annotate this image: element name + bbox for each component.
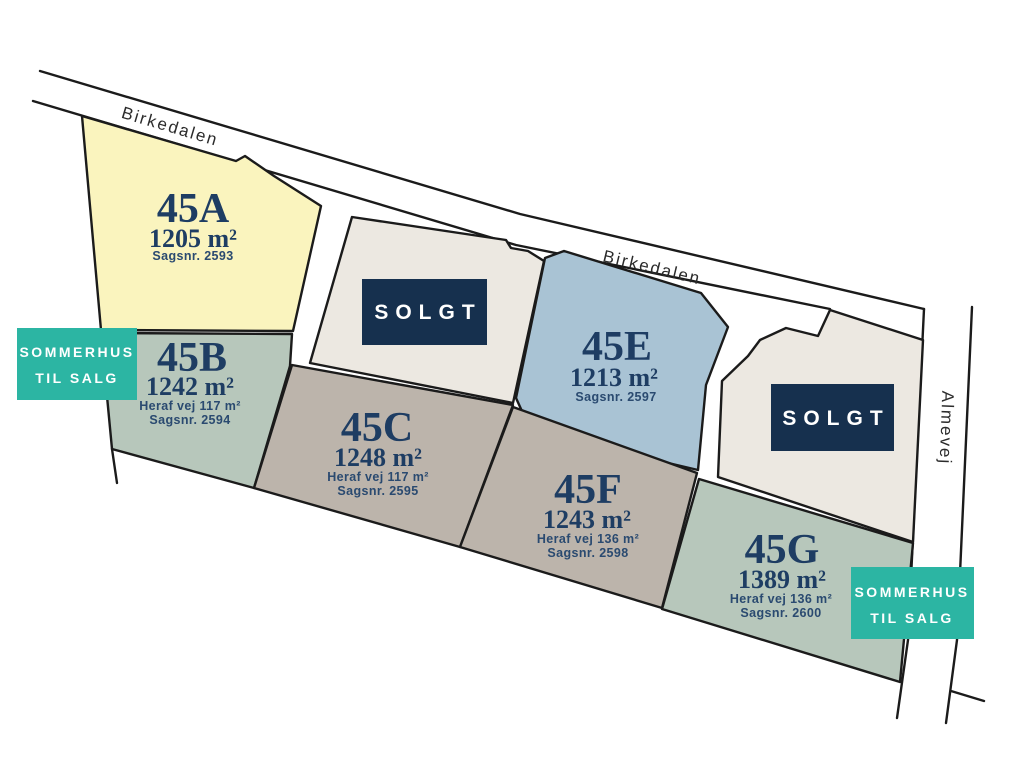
plot-45B-boundary-stub: [112, 449, 117, 483]
for-sale-badge-right[interactable]: SOMMERHUS TIL SALG: [851, 567, 974, 639]
for-sale-badge-left[interactable]: SOMMERHUS TIL SALG: [17, 328, 137, 400]
plot-45C-road-share: Heraf vej 117 m²: [327, 470, 429, 484]
plot-45F-road-share: Heraf vej 136 m²: [537, 532, 639, 546]
plot-45B-road-share: Heraf vej 117 m²: [139, 399, 241, 413]
plot-45C-area: 1248 m²: [334, 443, 422, 472]
plot-45C-case: Sagsnr. 2595: [337, 484, 418, 498]
plot-45B-area: 1242 m²: [146, 372, 234, 401]
plot-45G-case: Sagsnr. 2600: [740, 606, 821, 620]
plot-45G-road-share: Heraf vej 136 m²: [730, 592, 832, 606]
for-sale-badge-left-line1: SOMMERHUS: [19, 344, 134, 360]
plot-map: 45A 1205 m² Sagsnr. 2593 45B 1242 m² Her…: [0, 0, 1024, 772]
plot-45E-case: Sagsnr. 2597: [575, 390, 656, 404]
sold-box-1[interactable]: SOLGT: [362, 279, 487, 345]
for-sale-badge-right-line1: SOMMERHUS: [854, 584, 969, 600]
plot-45F-area: 1243 m²: [543, 505, 631, 534]
plot-45E-area: 1213 m²: [570, 363, 658, 392]
sold-box-1-label: SOLGT: [374, 301, 481, 324]
plot-45E-labels: 45E 1213 m² Sagsnr. 2597: [570, 324, 658, 404]
plot-45A-labels: 45A 1205 m² Sagsnr. 2593: [149, 186, 237, 263]
plot-45F-case: Sagsnr. 2598: [547, 546, 628, 560]
sold-box-2-label: SOLGT: [782, 407, 889, 430]
for-sale-badge-right-line2: TIL SALG: [870, 610, 954, 626]
sold-box-2[interactable]: SOLGT: [771, 384, 894, 451]
road-label-almevej: Almevej: [936, 390, 958, 465]
plot-45G-labels: 45G 1389 m² Heraf vej 136 m² Sagsnr. 260…: [730, 527, 832, 620]
for-sale-badge-left-line2: TIL SALG: [35, 370, 119, 386]
plot-45G-area: 1389 m²: [738, 565, 826, 594]
plot-45A-case: Sagsnr. 2593: [152, 249, 233, 263]
road-branch-line: [951, 691, 984, 701]
road-almevej-right-line: [946, 307, 972, 723]
plot-45B-case: Sagsnr. 2594: [149, 413, 230, 427]
